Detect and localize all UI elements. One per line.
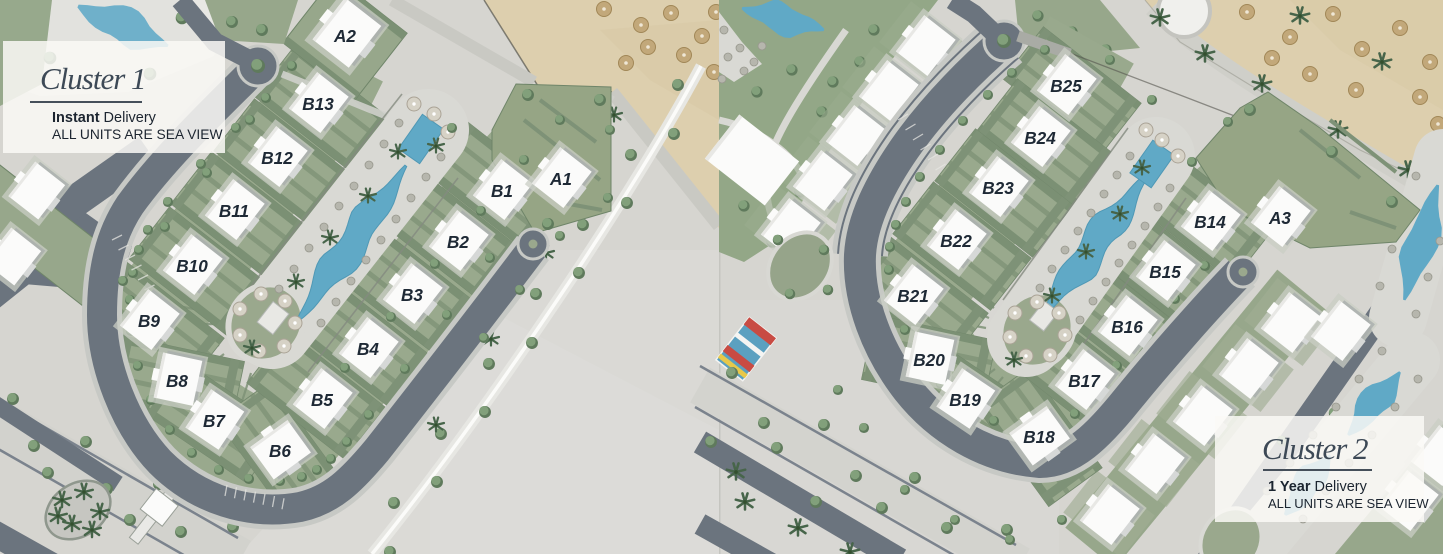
svg-text:B16: B16 (1111, 317, 1143, 337)
svg-text:B24: B24 (1024, 128, 1056, 148)
svg-text:B8: B8 (166, 371, 188, 391)
svg-text:A2: A2 (333, 26, 356, 46)
svg-text:1 Year Delivery: 1 Year Delivery (1268, 479, 1368, 495)
svg-text:Cluster 1: Cluster 1 (40, 61, 146, 96)
svg-text:B3: B3 (401, 285, 423, 305)
svg-text:B10: B10 (176, 256, 208, 276)
svg-text:B7: B7 (203, 411, 226, 431)
svg-text:B23: B23 (982, 178, 1014, 198)
svg-text:B18: B18 (1023, 427, 1055, 447)
svg-text:B5: B5 (311, 390, 333, 410)
svg-text:ALL UNITS ARE SEA VIEW: ALL UNITS ARE SEA VIEW (1268, 496, 1429, 511)
svg-text:B17: B17 (1068, 371, 1101, 391)
svg-text:B25: B25 (1050, 76, 1082, 96)
svg-text:B15: B15 (1149, 262, 1181, 282)
svg-text:B2: B2 (447, 232, 469, 252)
svg-text:A3: A3 (1268, 208, 1291, 228)
svg-text:B9: B9 (138, 311, 160, 331)
svg-text:ALL UNITS ARE SEA VIEW: ALL UNITS ARE SEA VIEW (52, 127, 222, 142)
svg-text:B19: B19 (949, 390, 981, 410)
svg-text:B11: B11 (219, 201, 249, 221)
svg-text:Cluster 2: Cluster 2 (1262, 431, 1368, 466)
svg-text:B21: B21 (897, 286, 929, 306)
svg-text:B6: B6 (269, 441, 291, 461)
svg-text:A1: A1 (549, 169, 572, 189)
svg-text:B12: B12 (261, 148, 293, 168)
svg-text:B14: B14 (1194, 212, 1226, 232)
svg-text:Instant Delivery: Instant Delivery (52, 110, 157, 126)
svg-text:B4: B4 (357, 339, 379, 359)
svg-text:B22: B22 (940, 231, 972, 251)
svg-text:B13: B13 (302, 94, 334, 114)
svg-text:B20: B20 (913, 350, 945, 370)
svg-text:B1: B1 (491, 181, 513, 201)
